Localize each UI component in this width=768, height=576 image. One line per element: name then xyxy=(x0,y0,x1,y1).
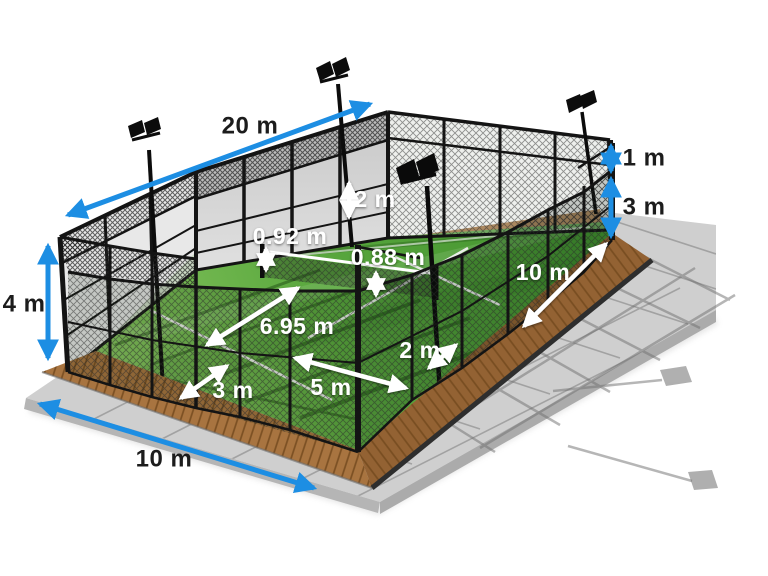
dim-label-gate: 2 m xyxy=(399,337,440,363)
padel-court-diagram: 20 m 4 m 1 m 3 m 10 m 2 m 0.92 m 0.88 m … xyxy=(0,0,768,576)
dim-label-net-post: 0.92 m xyxy=(253,223,328,249)
dim-label-net-center: 0.88 m xyxy=(351,244,426,270)
dim-label-half-length: 10 m xyxy=(516,259,570,285)
dim-label-service-box: 5 m xyxy=(310,374,351,400)
dim-label-wall-panel: 2 m xyxy=(354,186,395,212)
dim-label-fence-height: 3 m xyxy=(623,194,666,221)
dim-label-back-distance: 3 m xyxy=(212,377,253,403)
dim-label-total-width: 10 m xyxy=(136,446,193,473)
dim-label-top-mesh: 1 m xyxy=(623,145,666,172)
dim-label-service-line: 6.95 m xyxy=(260,313,335,339)
dim-label-total-length: 20 m xyxy=(222,113,279,140)
dim-label-corner-height: 4 m xyxy=(3,291,46,318)
floodlight-shadows xyxy=(660,366,718,490)
